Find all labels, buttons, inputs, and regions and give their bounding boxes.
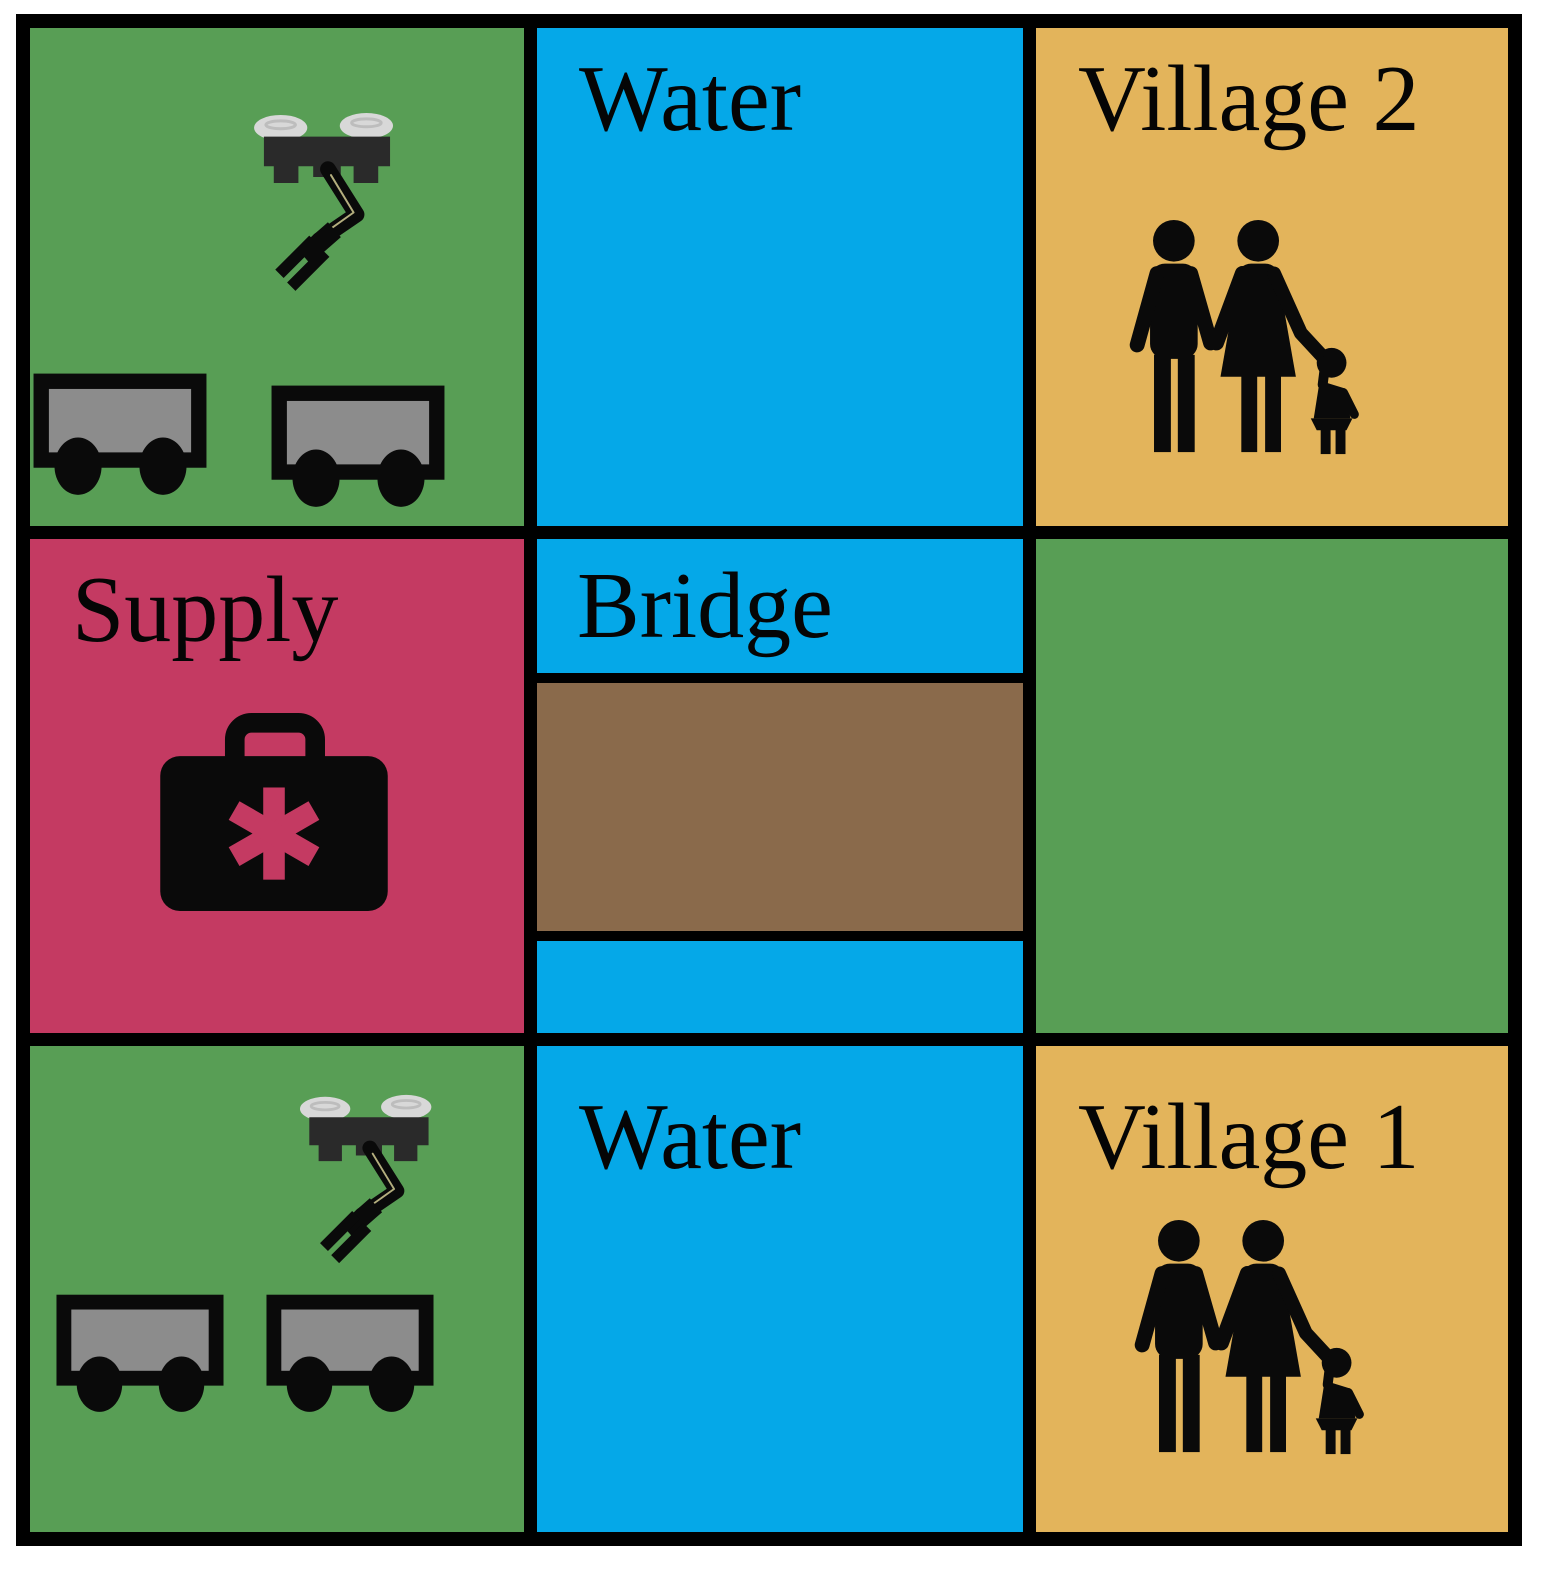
cell-village-1: Village 1 [1036,1046,1508,1532]
cell-base-north [30,28,524,526]
medical-kit-icon [158,711,390,913]
drone-manipulator-icon [252,112,400,314]
family-icon [1121,1214,1451,1464]
cell-grass-east [1036,539,1508,1033]
cart-icon [270,384,446,511]
bridge-water-top: Bridge [537,539,1023,673]
water-north-label: Water [579,52,801,146]
map-grid: Water Village 2 Supply Bridge [16,14,1522,1546]
bridge-deck [537,673,1023,941]
family-icon [1116,214,1446,464]
village-1-label: Village 1 [1078,1090,1420,1184]
cell-base-south [30,1046,524,1532]
scenario-map: Water Village 2 Supply Bridge [0,0,1557,1570]
cell-water-north: Water [537,28,1023,526]
cart-icon [55,1293,225,1416]
drone-manipulator-icon [298,1094,438,1285]
bridge-label: Bridge [577,559,833,653]
village-2-label: Village 2 [1078,52,1420,146]
water-south-label: Water [579,1090,801,1184]
cell-supply: Supply [30,539,524,1033]
supply-label: Supply [72,563,338,657]
cart-icon [32,372,208,499]
cell-bridge: Bridge [537,539,1023,1033]
bridge-water-bottom [537,941,1023,1033]
cell-village-2: Village 2 [1036,28,1508,526]
cart-icon [265,1293,435,1416]
cell-water-south: Water [537,1046,1023,1532]
